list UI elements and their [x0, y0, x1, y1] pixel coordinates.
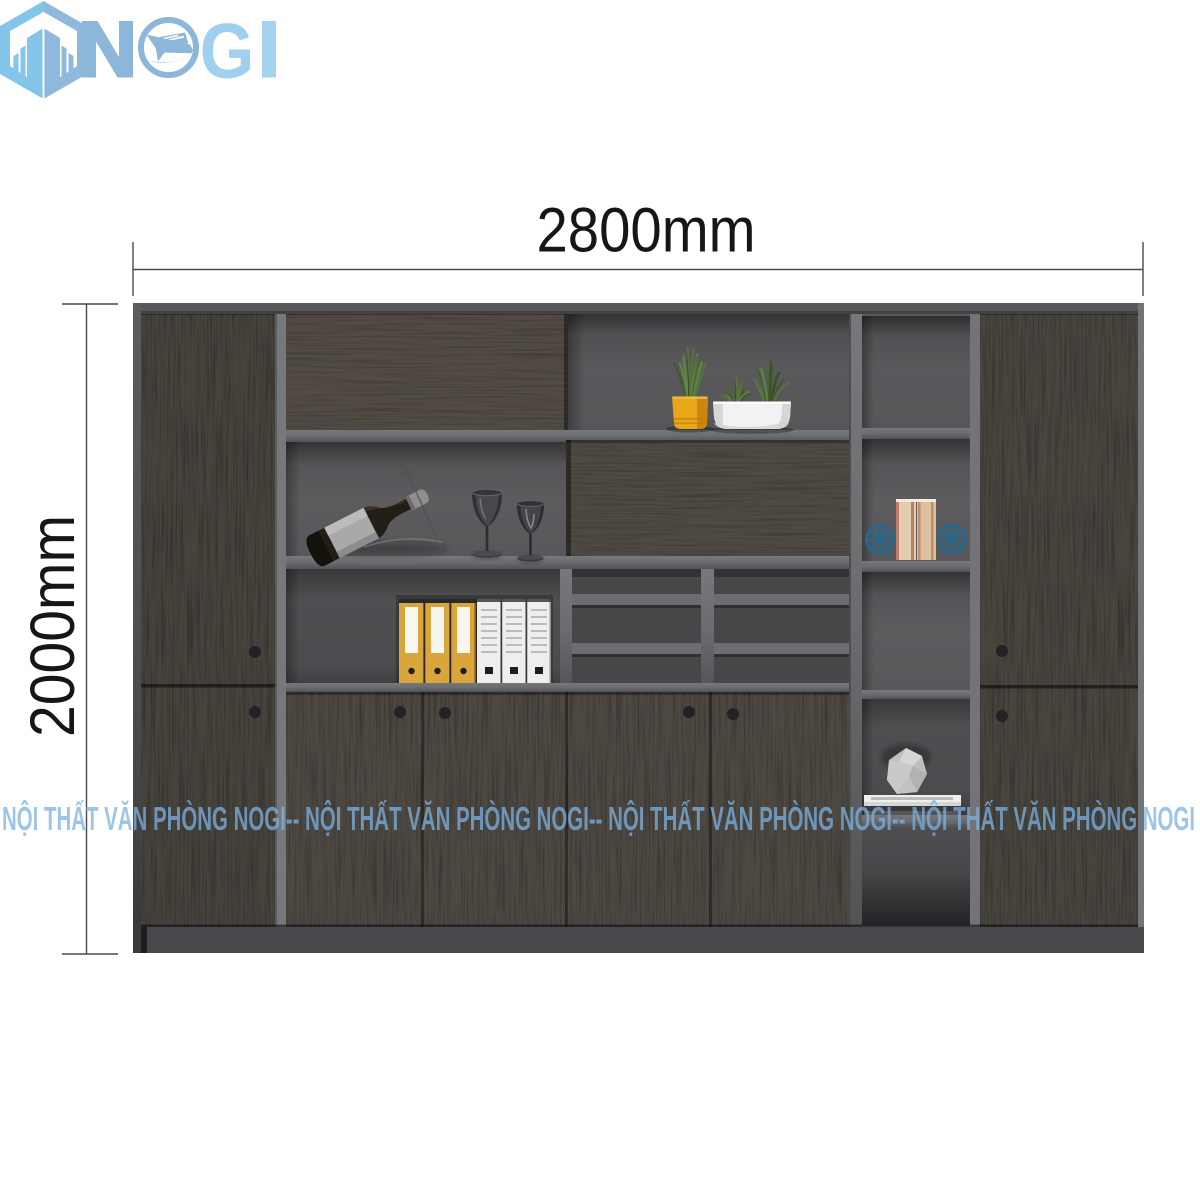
svg-text:2000mm: 2000mm — [18, 515, 88, 737]
svg-text:2800mm: 2800mm — [537, 196, 756, 266]
svg-text:NỘI THẤT VĂN PHÒNG NOGI-- NỘI: NỘI THẤT VĂN PHÒNG NOGI-- NỘI THẤT VĂN P… — [2, 799, 1195, 837]
svg-text:G: G — [200, 7, 255, 94]
